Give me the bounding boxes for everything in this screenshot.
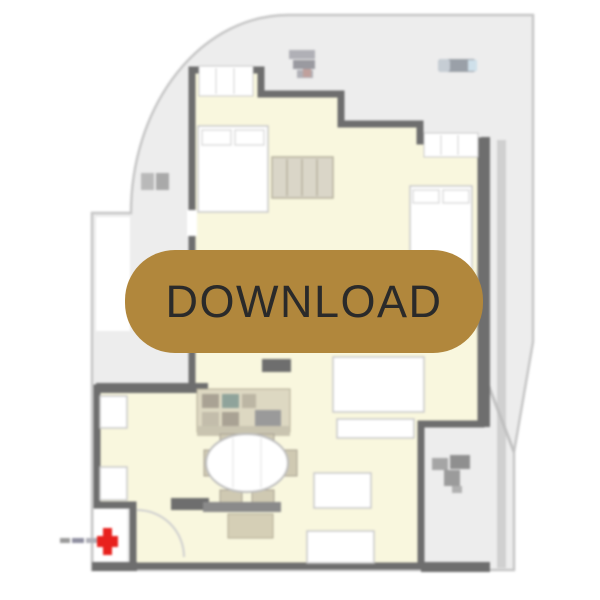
terrace-walkway-gap bbox=[96, 217, 130, 331]
dining-table bbox=[206, 434, 288, 492]
entrance-marker-icon bbox=[60, 528, 118, 555]
sofa-right bbox=[337, 419, 414, 438]
download-button[interactable]: DOWNLOAD bbox=[125, 250, 483, 353]
sofa-bottom bbox=[307, 531, 374, 563]
floor-plan-page: DOWNLOAD bbox=[0, 0, 600, 600]
sofa-mid bbox=[314, 473, 371, 508]
bath-fixture-2 bbox=[100, 467, 127, 500]
download-button-label: DOWNLOAD bbox=[165, 279, 442, 324]
left-wall-opening bbox=[187, 210, 197, 236]
balustrade-line bbox=[497, 140, 506, 568]
kitchen-counter bbox=[197, 389, 290, 436]
bath-fixture-1 bbox=[100, 396, 127, 428]
bedroom2-rug bbox=[333, 357, 424, 412]
bedroom1-window bbox=[199, 66, 253, 96]
bedroom2-window bbox=[424, 133, 478, 157]
terrace-label bbox=[438, 59, 477, 72]
